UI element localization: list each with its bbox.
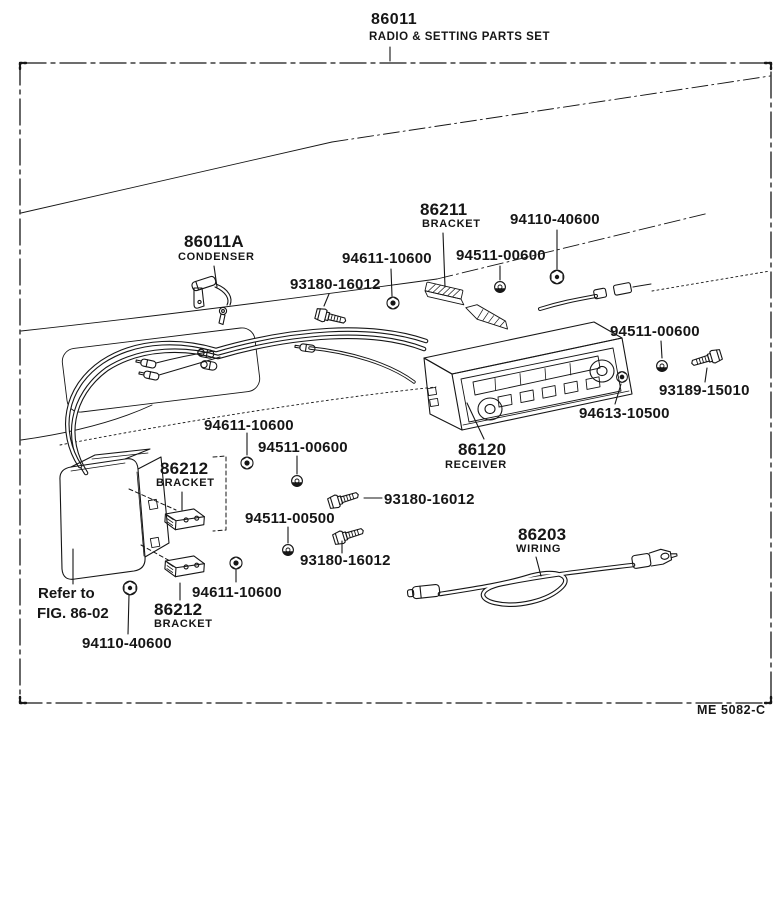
bracket-86212-upper-drawing [164,507,204,532]
callout-condenser-number: 86011A [184,233,244,250]
drawing-code: ME 5082-C [697,704,766,717]
callout-94511-right: 94511-00600 [610,324,700,339]
screw-94511-mid [292,476,303,487]
screw-94511-00500 [283,545,294,556]
callout-receiver-caption: RECEIVER [445,460,507,471]
callout-93180-mid: 93180-16012 [384,492,475,507]
callout-93180-upper: 93180-16012 [290,277,381,292]
nut-94611-lower [230,557,242,569]
screw-94511-upper [495,282,506,293]
callout-94511-mid: 94511-00600 [258,440,348,455]
parts-diagram-page: 86011 RADIO & SETTING PARTS SET 86011A C… [0,0,776,910]
title-part-number: 86011 [371,12,417,28]
callout-94611-upper: 94611-10600 [342,251,432,266]
bolt-93180-upper [314,307,347,327]
nut-94110-upper [550,270,564,284]
callout-receiver-number: 86120 [458,441,506,458]
nut-94611-mid [241,457,253,469]
bolt-93180-mid [327,488,360,509]
callout-wiring-number: 86203 [518,526,566,543]
callout-94110-upper: 94110-40600 [510,212,600,227]
nut-94110-lower [123,581,137,595]
screw-94511-right [657,361,668,372]
callout-94511-00500: 94511-00500 [245,511,335,526]
diagram-line-art [0,0,776,910]
callout-94611-mid: 94611-10600 [204,418,294,433]
callout-bracket-lower-caption: BRACKET [154,619,213,630]
callout-94611-lower: 94611-10600 [192,585,282,600]
callout-93180-lower: 93180-16012 [300,553,391,568]
callout-bracket-upper-number: 86211 [420,201,467,218]
callout-bracket-mid-caption: BRACKET [156,478,215,489]
callout-94511-upper: 94511-00600 [456,248,546,263]
wiring-86203-drawing [407,547,678,605]
nut-94611-upper [387,297,399,309]
speaker-box-drawing [60,449,169,579]
callout-bracket-mid-number: 86212 [160,460,208,477]
callout-condenser-caption: CONDENSER [178,252,255,263]
refer-note-line1: Refer to [38,586,95,601]
title-description: RADIO & SETTING PARTS SET [369,32,550,44]
bolt-93189 [690,348,723,369]
bolt-93180-lower [332,524,365,545]
callout-94110-lower: 94110-40600 [82,636,172,651]
condenser-drawing [191,276,231,325]
wiring-harness-drawing [67,282,651,473]
callout-94613: 94613-10500 [579,406,670,421]
refer-note-line2: FIG. 86-02 [37,606,109,621]
bracket-86212-lower-drawing [164,554,204,579]
callout-wiring-caption: WIRING [516,544,561,555]
callout-bracket-lower-number: 86212 [154,601,202,618]
callout-93189: 93189-15010 [659,383,750,398]
callout-bracket-upper-caption: BRACKET [422,219,481,230]
